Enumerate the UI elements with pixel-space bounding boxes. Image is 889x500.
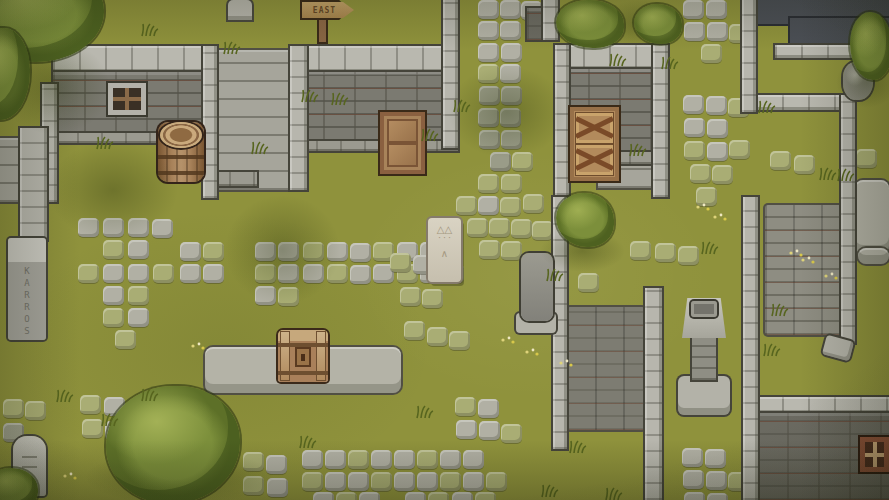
path-tile bbox=[302, 450, 323, 469]
path-tile bbox=[394, 472, 415, 491]
wall-window bbox=[860, 437, 889, 472]
path-tile bbox=[578, 273, 599, 292]
path-tile bbox=[449, 331, 470, 350]
tablet-glyphs: ˙˙˙ bbox=[437, 236, 452, 247]
path-tile bbox=[501, 43, 522, 62]
bush bbox=[556, 0, 624, 48]
path-tile bbox=[428, 492, 449, 500]
flowers-icon bbox=[823, 266, 839, 276]
flowers-icon bbox=[62, 466, 78, 476]
grass-tuft-icon bbox=[770, 302, 790, 316]
grass-tuft-icon bbox=[415, 404, 435, 418]
wall-edge bbox=[841, 95, 855, 343]
path-tile bbox=[390, 253, 411, 272]
path-tile bbox=[359, 492, 380, 500]
stone-platform bbox=[855, 180, 889, 254]
flowers-icon bbox=[712, 207, 728, 217]
path-tile bbox=[683, 95, 704, 114]
path-tile bbox=[103, 286, 124, 305]
path-tile bbox=[478, 43, 499, 62]
wall-top bbox=[292, 46, 458, 72]
path-tile bbox=[707, 493, 728, 500]
flowers-icon bbox=[800, 250, 816, 260]
scene-layers: EAST△△˙˙˙∧KARROS bbox=[0, 0, 889, 500]
path-tile bbox=[500, 197, 521, 216]
path-tile bbox=[80, 395, 101, 414]
path-tile bbox=[706, 96, 727, 115]
path-tile bbox=[684, 141, 705, 160]
path-tile bbox=[115, 330, 136, 349]
path-tile bbox=[180, 242, 201, 261]
path-tile bbox=[400, 287, 421, 306]
path-tile bbox=[479, 421, 500, 440]
wall-top bbox=[756, 397, 889, 413]
barrel-lid bbox=[160, 122, 202, 148]
path-tile bbox=[203, 242, 224, 261]
grass-tuft-icon bbox=[762, 342, 782, 356]
path-tile bbox=[180, 264, 201, 283]
shade bbox=[48, 140, 178, 240]
path-tile bbox=[500, 0, 521, 19]
path-tile bbox=[706, 0, 727, 19]
path-tile bbox=[630, 241, 651, 260]
path-tile bbox=[475, 492, 496, 500]
tree-canopy bbox=[106, 386, 240, 500]
grass-tuft-icon bbox=[604, 486, 624, 500]
path-tile bbox=[348, 472, 369, 491]
path-tile bbox=[712, 165, 733, 184]
path-tile bbox=[103, 264, 124, 283]
path-tile bbox=[455, 397, 476, 416]
path-tile bbox=[478, 21, 499, 40]
flowers-icon bbox=[558, 353, 574, 363]
path-tile bbox=[153, 264, 174, 283]
grass-tuft-icon bbox=[330, 91, 350, 105]
flowers-icon bbox=[500, 330, 516, 340]
grass-tuft-icon bbox=[298, 434, 318, 448]
grass-tuft-icon bbox=[420, 127, 440, 141]
path-tile bbox=[394, 450, 415, 469]
rune-pillar[interactable]: KARROS bbox=[8, 238, 46, 340]
path-tile bbox=[422, 289, 443, 308]
wall-base bbox=[292, 141, 458, 151]
direction-sign[interactable]: EAST bbox=[300, 0, 349, 42]
flowers-icon bbox=[190, 336, 206, 346]
path-tile bbox=[325, 450, 346, 469]
wall-edge bbox=[742, 0, 756, 112]
stone-floor bbox=[215, 50, 294, 190]
path-tile bbox=[25, 401, 46, 420]
grass-tuft-icon bbox=[545, 267, 565, 281]
path-tile bbox=[463, 472, 484, 491]
path-tile bbox=[417, 450, 438, 469]
path-tile bbox=[371, 450, 392, 469]
path-tile bbox=[350, 243, 371, 262]
path-tile bbox=[128, 308, 149, 327]
path-tile bbox=[655, 243, 676, 262]
path-tile bbox=[501, 174, 522, 193]
path-tile bbox=[684, 118, 705, 137]
tablet-glyphs: △△ bbox=[437, 224, 452, 235]
grass-tuft-icon bbox=[452, 98, 472, 112]
stone-floor bbox=[0, 138, 20, 202]
path-tile bbox=[371, 472, 392, 491]
window-cross-icon bbox=[865, 453, 884, 457]
path-tile bbox=[486, 472, 507, 491]
path-tile bbox=[325, 472, 346, 491]
stone-tablet[interactable]: △△˙˙˙∧ bbox=[428, 218, 461, 282]
path-tile bbox=[128, 264, 149, 283]
grass-tuft-icon bbox=[95, 135, 115, 149]
path-tile bbox=[203, 264, 224, 283]
path-tile bbox=[489, 218, 510, 237]
path-tile bbox=[302, 472, 323, 491]
flowers-icon bbox=[524, 342, 540, 352]
wall-window bbox=[108, 83, 146, 115]
path-tile bbox=[478, 399, 499, 418]
dark-paved-bricks bbox=[567, 307, 645, 430]
path-tile bbox=[3, 399, 24, 418]
path-tile bbox=[690, 164, 711, 183]
path-tile bbox=[103, 308, 124, 327]
path-tile bbox=[682, 448, 703, 467]
path-tile bbox=[683, 470, 704, 489]
path-tile bbox=[467, 218, 488, 237]
grass-tuft-icon bbox=[836, 167, 856, 181]
path-tile bbox=[348, 450, 369, 469]
grass-tuft-icon bbox=[250, 140, 270, 154]
grass-tuft-icon bbox=[140, 22, 160, 36]
path-tile bbox=[440, 472, 461, 491]
bush bbox=[556, 193, 614, 247]
small-gravestone[interactable] bbox=[228, 0, 252, 20]
stone-platform bbox=[858, 248, 889, 264]
path-tile bbox=[479, 240, 500, 259]
path-tile bbox=[417, 472, 438, 491]
grass-tuft-icon bbox=[757, 99, 777, 113]
path-tile bbox=[705, 449, 726, 468]
path-tile bbox=[478, 0, 499, 19]
path-tile bbox=[501, 424, 522, 443]
sign-text: EAST bbox=[313, 6, 336, 15]
grass-tuft-icon bbox=[55, 388, 75, 402]
path-tile bbox=[313, 492, 334, 500]
wall-edge bbox=[645, 288, 662, 500]
grass-tuft-icon bbox=[100, 412, 120, 426]
path-tile bbox=[523, 194, 544, 213]
chest-lock-icon bbox=[297, 349, 309, 365]
flowers-icon bbox=[695, 197, 711, 207]
wooden-crate-door[interactable] bbox=[380, 112, 425, 174]
path-tile bbox=[456, 196, 477, 215]
grass-tuft-icon bbox=[608, 52, 628, 66]
path-tile bbox=[405, 492, 426, 500]
path-tile bbox=[103, 240, 124, 259]
path-tile bbox=[478, 196, 499, 215]
path-tile bbox=[336, 492, 357, 500]
path-tile bbox=[452, 492, 473, 500]
path-tile bbox=[684, 492, 705, 500]
path-tile bbox=[707, 119, 728, 138]
wall-edge bbox=[743, 197, 758, 500]
path-tile bbox=[794, 155, 815, 174]
wall-edge bbox=[203, 46, 217, 198]
stone-pedestal[interactable] bbox=[678, 298, 730, 415]
path-tile bbox=[770, 151, 791, 170]
grass-tuft-icon bbox=[222, 40, 242, 54]
shade bbox=[225, 195, 340, 305]
dark-brick-wall bbox=[527, 8, 543, 40]
path-tile bbox=[856, 149, 877, 168]
path-tile bbox=[404, 321, 425, 340]
grass-tuft-icon bbox=[700, 240, 720, 254]
wall-edge bbox=[290, 46, 307, 190]
path-tile bbox=[707, 142, 728, 161]
path-tile bbox=[500, 21, 521, 40]
path-tile bbox=[440, 450, 461, 469]
path-tile bbox=[701, 44, 722, 63]
grass-tuft-icon bbox=[300, 88, 320, 102]
grass-tuft-icon bbox=[568, 439, 588, 453]
path-tile bbox=[463, 450, 484, 469]
grass-tuft-icon bbox=[540, 483, 560, 497]
path-tile bbox=[511, 219, 532, 238]
path-tile bbox=[427, 327, 448, 346]
grass-tuft-icon bbox=[660, 55, 680, 69]
grass-tuft-icon bbox=[628, 142, 648, 156]
path-tile bbox=[78, 264, 99, 283]
path-tile bbox=[729, 140, 750, 159]
rune-glyphs: KARROS bbox=[22, 266, 32, 338]
path-tile bbox=[128, 286, 149, 305]
path-tile bbox=[707, 22, 728, 41]
window-cross-icon bbox=[113, 97, 141, 101]
path-tile bbox=[678, 246, 699, 265]
game-viewport: EAST△△˙˙˙∧KARROS bbox=[0, 0, 889, 500]
treasure-chest[interactable] bbox=[278, 330, 328, 382]
bush bbox=[634, 4, 682, 44]
path-tile bbox=[456, 420, 477, 439]
path-tile bbox=[706, 471, 727, 490]
path-tile bbox=[478, 174, 499, 193]
supply-crate[interactable] bbox=[570, 107, 619, 181]
tablet-glyphs: ∧ bbox=[441, 248, 448, 259]
path-tile bbox=[350, 265, 371, 284]
wall-edge bbox=[20, 128, 47, 240]
path-tile bbox=[128, 240, 149, 259]
grass-tuft-icon bbox=[140, 387, 160, 401]
grass-tuft-icon bbox=[818, 166, 838, 180]
